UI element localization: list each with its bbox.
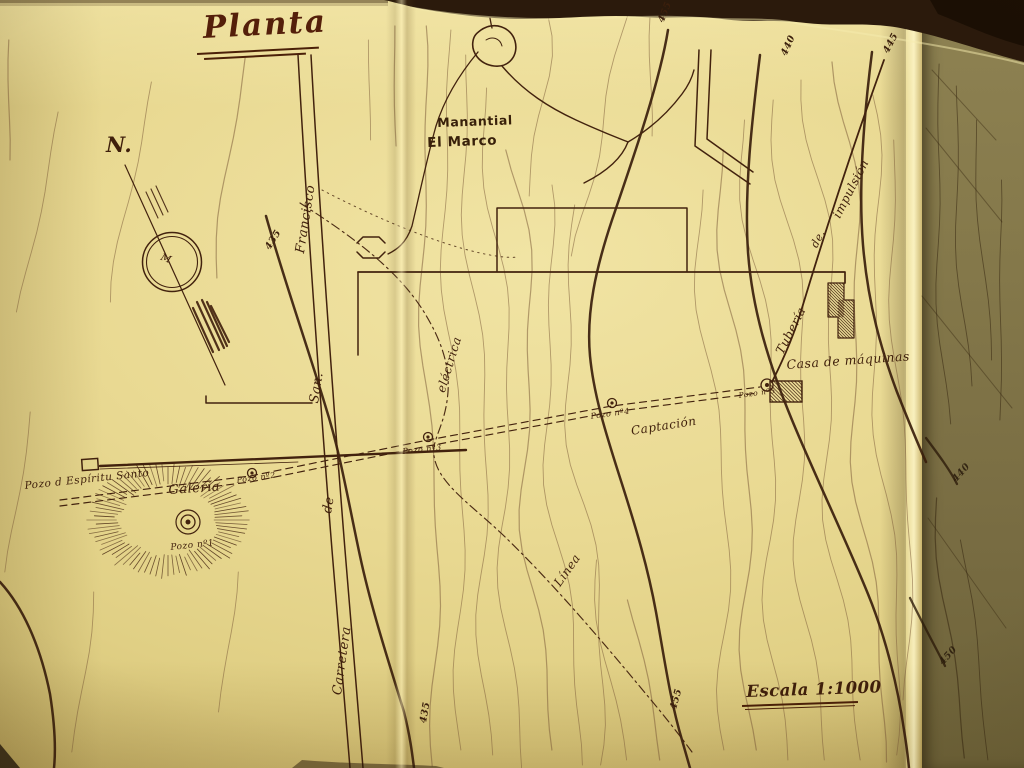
map-photo: Planta N. M Manantial El Marco Francisco… [0, 0, 1024, 768]
map-linework [0, 0, 1024, 768]
